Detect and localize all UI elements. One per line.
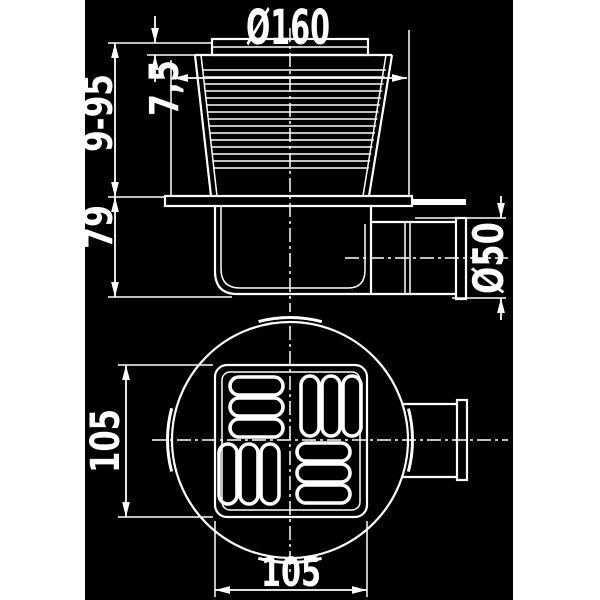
dim-label-grate-edge-height: 7,5 — [142, 60, 188, 116]
technical-drawing-page: Ø160 7,5 9-95 79 Ø50 — [0, 0, 600, 600]
dim-label-grate-width: 105 — [261, 550, 321, 596]
collar-ribs — [190, 70, 395, 168]
dim-label-adjustable-height: 9-95 — [76, 74, 122, 152]
floor-drain-drawing: Ø160 7,5 9-95 79 Ø50 — [0, 0, 600, 600]
dim-label-collar-diameter: Ø160 — [246, 0, 330, 56]
dim-label-grate-height: 105 — [83, 409, 129, 473]
dim-label-outlet-diameter: Ø50 — [464, 222, 513, 294]
dim-label-body-height: 79 — [76, 205, 122, 249]
